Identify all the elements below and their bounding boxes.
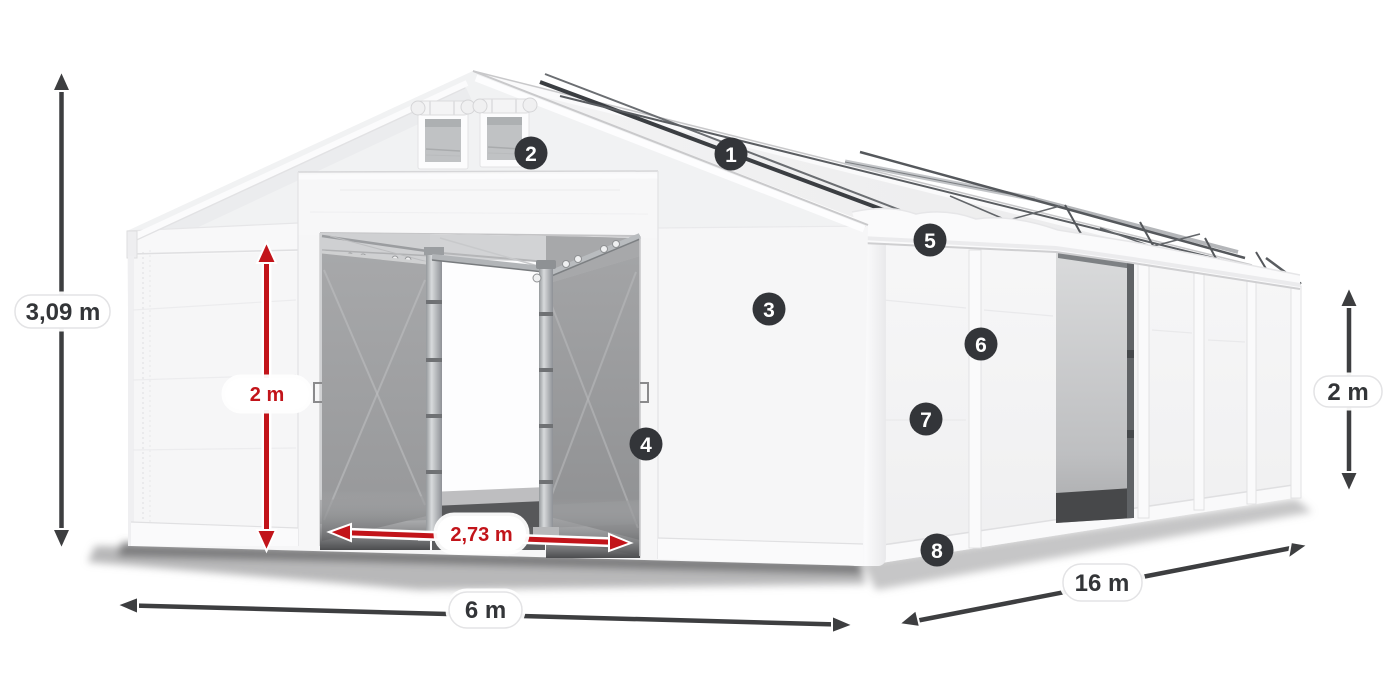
svg-text:2 m: 2 m: [1327, 379, 1368, 406]
svg-text:16 m: 16 m: [1075, 570, 1130, 597]
svg-text:6 m: 6 m: [465, 597, 506, 624]
svg-text:8: 8: [931, 540, 943, 563]
svg-text:6: 6: [975, 334, 987, 357]
svg-text:5: 5: [924, 230, 936, 253]
svg-text:2,73 m: 2,73 m: [450, 524, 512, 546]
svg-text:4: 4: [640, 434, 652, 457]
svg-text:3: 3: [763, 299, 775, 322]
svg-text:2: 2: [525, 143, 537, 166]
svg-text:1: 1: [725, 144, 737, 167]
svg-text:3,09 m: 3,09 m: [26, 299, 101, 326]
svg-text:7: 7: [920, 409, 932, 432]
svg-text:2 m: 2 m: [250, 384, 284, 406]
